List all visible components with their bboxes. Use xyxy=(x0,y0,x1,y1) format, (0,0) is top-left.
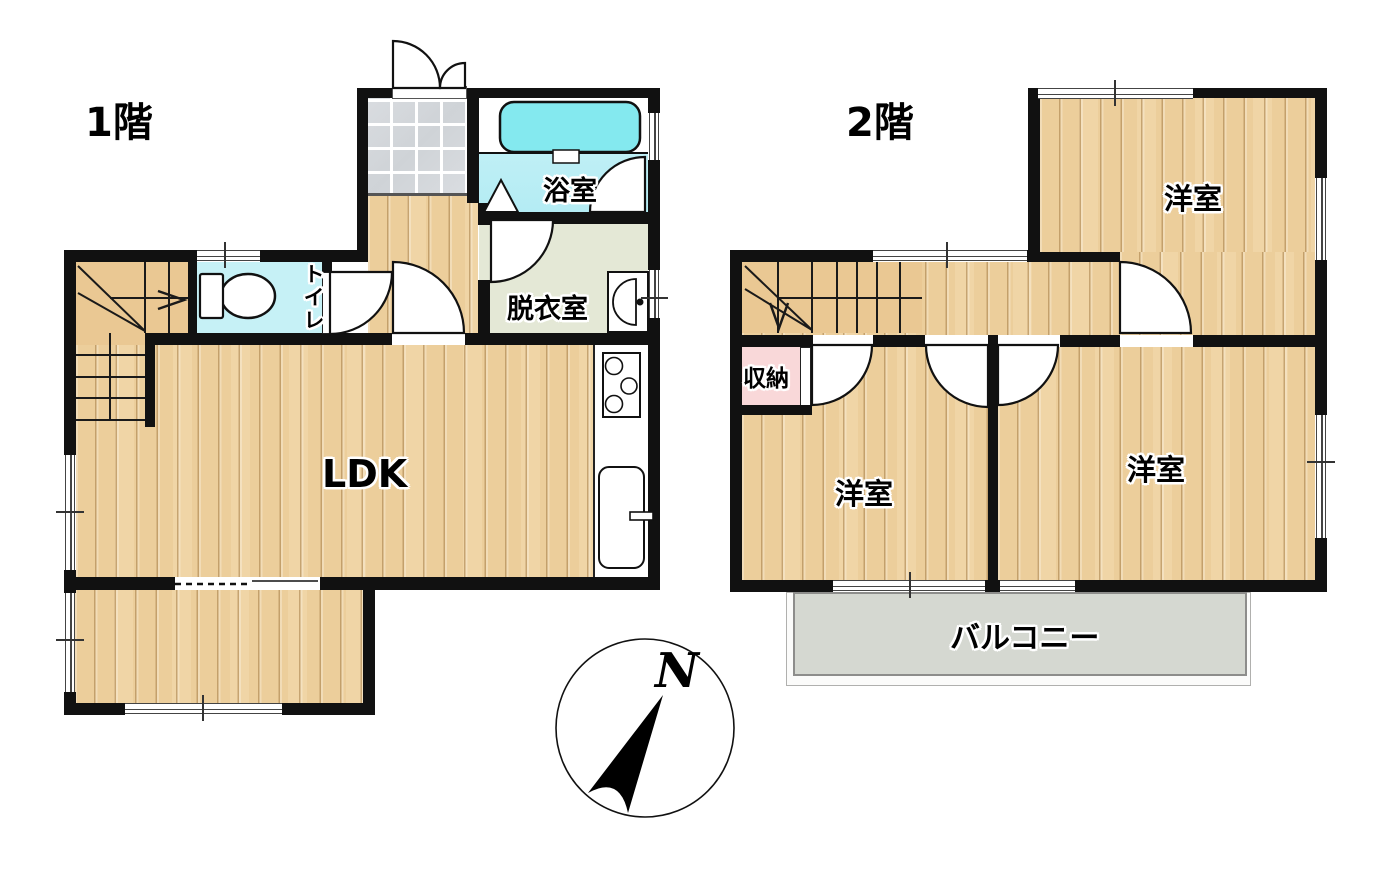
room-label-western-top: 洋室 xyxy=(1164,176,1222,218)
wall-segment xyxy=(1028,88,1038,98)
stairs-2f xyxy=(742,262,922,333)
floorplan-canvas: 1階 2階 LDK 浴室 脱衣室 トイレ 洋室 洋室 洋室 収納 バルコニー N xyxy=(0,0,1391,886)
door-opening xyxy=(392,333,465,345)
window xyxy=(65,593,75,692)
door-opening xyxy=(813,335,873,347)
closet-door-leaf xyxy=(800,347,811,406)
window xyxy=(65,455,75,570)
entrance-double-door xyxy=(393,41,465,88)
wall-segment xyxy=(648,318,660,590)
wall-segment xyxy=(648,160,660,270)
wall-segment xyxy=(873,335,925,347)
door-opening xyxy=(925,335,988,347)
room-label-dressing: 脱衣室 xyxy=(507,287,588,326)
window xyxy=(125,703,282,714)
window xyxy=(1316,178,1326,260)
wall-segment xyxy=(988,347,998,580)
western-room-top-floor xyxy=(1120,252,1315,335)
dining-extension-floor xyxy=(75,588,363,703)
wall-segment xyxy=(465,88,660,98)
wall-segment xyxy=(357,88,392,98)
western-room-top-floor xyxy=(1040,98,1315,252)
door-opening xyxy=(998,335,1060,347)
entrance-step-edge xyxy=(368,193,467,196)
window xyxy=(197,250,260,261)
sliding-partition-opening xyxy=(175,577,320,590)
wall-segment xyxy=(730,262,742,592)
wall-segment xyxy=(357,98,368,262)
wall-segment xyxy=(1060,335,1327,347)
wall-segment xyxy=(145,345,155,427)
kitchen-counter xyxy=(593,340,652,582)
wall-segment xyxy=(64,703,125,715)
entrance-floor xyxy=(368,98,467,195)
wall-segment xyxy=(648,88,660,113)
stairs-1f-upper xyxy=(76,262,188,333)
wall-segment xyxy=(730,335,813,347)
room-label-western-left: 洋室 xyxy=(835,471,893,513)
bathtub-platform xyxy=(479,98,648,154)
wall-segment xyxy=(64,262,76,455)
room-label-western-right: 洋室 xyxy=(1127,447,1185,489)
wall-segment xyxy=(1028,98,1040,252)
wall-segment xyxy=(730,405,812,415)
floor2-title: 2階 xyxy=(846,90,914,148)
entrance-door-sill xyxy=(392,86,467,99)
balcony-window xyxy=(833,580,985,591)
window xyxy=(649,270,659,318)
wall-segment xyxy=(145,333,392,345)
wall-segment xyxy=(479,212,648,224)
wall-segment xyxy=(1028,252,1120,262)
wall-segment xyxy=(282,703,375,715)
compass-icon xyxy=(556,639,734,817)
room-label-closet: 収納 xyxy=(743,359,789,393)
room-label-balcony: バルコニー xyxy=(950,613,1099,657)
wall-segment xyxy=(1193,88,1327,98)
wall-segment xyxy=(467,98,479,203)
window xyxy=(1038,88,1193,99)
wall-segment xyxy=(730,250,873,262)
wall-segment xyxy=(188,262,197,333)
wall-segment xyxy=(478,280,490,333)
wall-segment xyxy=(64,577,175,590)
wall-segment xyxy=(985,580,1000,592)
wall-segment xyxy=(1315,88,1327,178)
compass-north-label: N xyxy=(655,643,699,699)
wall-segment xyxy=(363,590,375,715)
wall-segment xyxy=(730,580,833,592)
wall-segment xyxy=(64,250,197,262)
wall-segment xyxy=(988,335,998,347)
room-label-toilet: トイレ xyxy=(298,263,328,332)
door-opening xyxy=(1120,335,1193,347)
floor1-title: 1階 xyxy=(85,90,153,148)
window xyxy=(1316,415,1326,538)
balcony-window xyxy=(1000,580,1075,591)
window xyxy=(873,250,1027,261)
wall-segment xyxy=(1075,580,1327,592)
wall-segment xyxy=(465,333,660,345)
wall-segment xyxy=(320,577,660,590)
hallway-1f-floor xyxy=(368,195,478,333)
window xyxy=(649,113,659,160)
wall-segment xyxy=(260,250,365,262)
room-label-ldk: LDK xyxy=(322,452,407,496)
room-label-bath: 浴室 xyxy=(543,169,597,208)
